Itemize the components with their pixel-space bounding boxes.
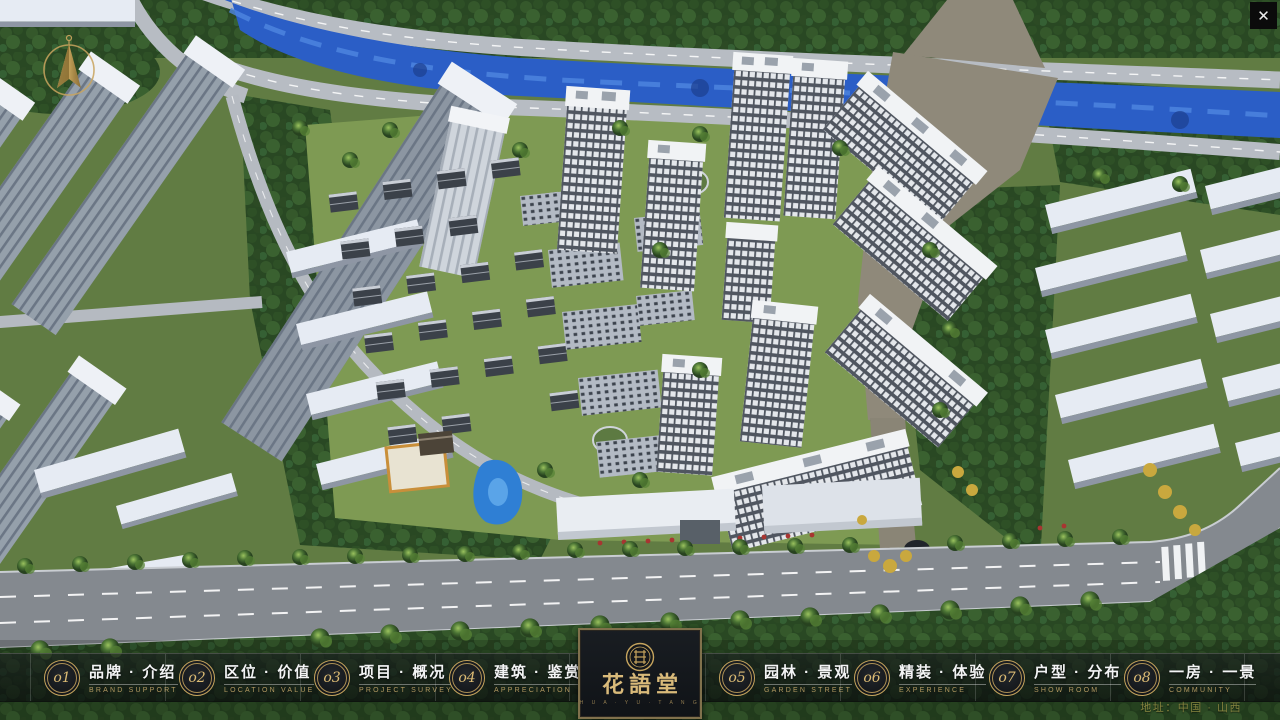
close-button[interactable]: ✕ [1250, 2, 1277, 29]
nav-badge: o8 [1124, 660, 1160, 696]
nav-badge: o2 [179, 660, 215, 696]
nav-label-en: EXPERIENCE [899, 687, 986, 694]
pavilion [418, 430, 454, 455]
nav-item-location[interactable]: o2 区位 · 价值LOCATION VALUE [165, 654, 300, 701]
nav-item-brand[interactable]: o1 品牌 · 介绍BRAND SUPPORT [30, 654, 165, 701]
nav-badge: o1 [44, 660, 80, 696]
app-window: ✕ o1 品牌 · 介绍BRAND SUPPORT o2 区位 · 价值LOCA… [0, 0, 1280, 720]
nav-label-en: SHOW ROOM [1034, 687, 1121, 694]
nav-item-architecture[interactable]: o4 建筑 · 鉴赏APPRECIATION [435, 654, 570, 701]
nav-label-zh: 一房 · 一景 [1169, 661, 1256, 685]
logo-title: 花語堂 [597, 674, 683, 696]
compass-icon [36, 30, 102, 102]
nav-label-zh: 园林 · 景观 [764, 661, 852, 685]
nav-item-floorplan[interactable]: o7 户型 · 分布SHOW ROOM [975, 654, 1110, 701]
nav-badge: o4 [449, 660, 485, 696]
nav-group-right: o5 园林 · 景观GARDEN STREET o6 精装 · 体验EXPERI… [705, 654, 1245, 701]
nav-label-en: APPRECIATION [494, 687, 581, 694]
nav-label-zh: 建筑 · 鉴赏 [494, 661, 581, 685]
map-viewport[interactable] [0, 0, 1280, 720]
logo-panel[interactable]: 花語堂 H U A · Y U · T A N G [578, 628, 702, 719]
nav-item-garden[interactable]: o5 园林 · 景观GARDEN STREET [705, 654, 840, 701]
nav-label-en: GARDEN STREET [764, 687, 852, 694]
project-address: 地址：中国 · 山西 [1140, 699, 1242, 715]
nav-item-interior[interactable]: o6 精装 · 体验EXPERIENCE [840, 654, 975, 701]
nav-item-project[interactable]: o3 项目 · 概况PROJECT SURVEY [300, 654, 435, 701]
nav-badge: o3 [314, 660, 350, 696]
nav-label-en: COMMUNITY [1169, 687, 1256, 694]
nav-badge: o7 [989, 660, 1025, 696]
logo-subtitle: H U A · Y U · T A N G [580, 700, 701, 706]
nav-badge: o5 [719, 660, 755, 696]
nav-label-zh: 户型 · 分布 [1034, 661, 1121, 685]
nav-badge: o6 [854, 660, 890, 696]
nav-label-zh: 精装 · 体验 [899, 661, 986, 685]
nav-group-left: o1 品牌 · 介绍BRAND SUPPORT o2 区位 · 价值LOCATI… [30, 654, 570, 701]
nav-item-views[interactable]: o8 一房 · 一景COMMUNITY [1110, 654, 1245, 701]
seal-icon [625, 642, 655, 672]
